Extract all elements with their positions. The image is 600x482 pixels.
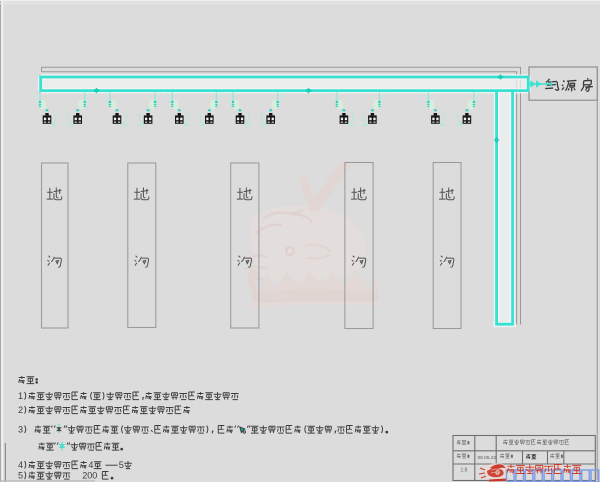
svg-text:1: 1	[18, 391, 23, 401]
svg-text:1:8: 1:8	[461, 468, 468, 474]
svg-text:4: 4	[88, 460, 93, 470]
svg-text:200: 200	[82, 471, 97, 481]
svg-text:2: 2	[18, 405, 23, 415]
svg-text:08.05.22: 08.05.22	[478, 455, 497, 461]
svg-text:3: 3	[18, 425, 23, 435]
svg-text:4: 4	[18, 460, 23, 470]
svg-text:5: 5	[119, 460, 124, 470]
svg-text:5: 5	[18, 471, 23, 481]
